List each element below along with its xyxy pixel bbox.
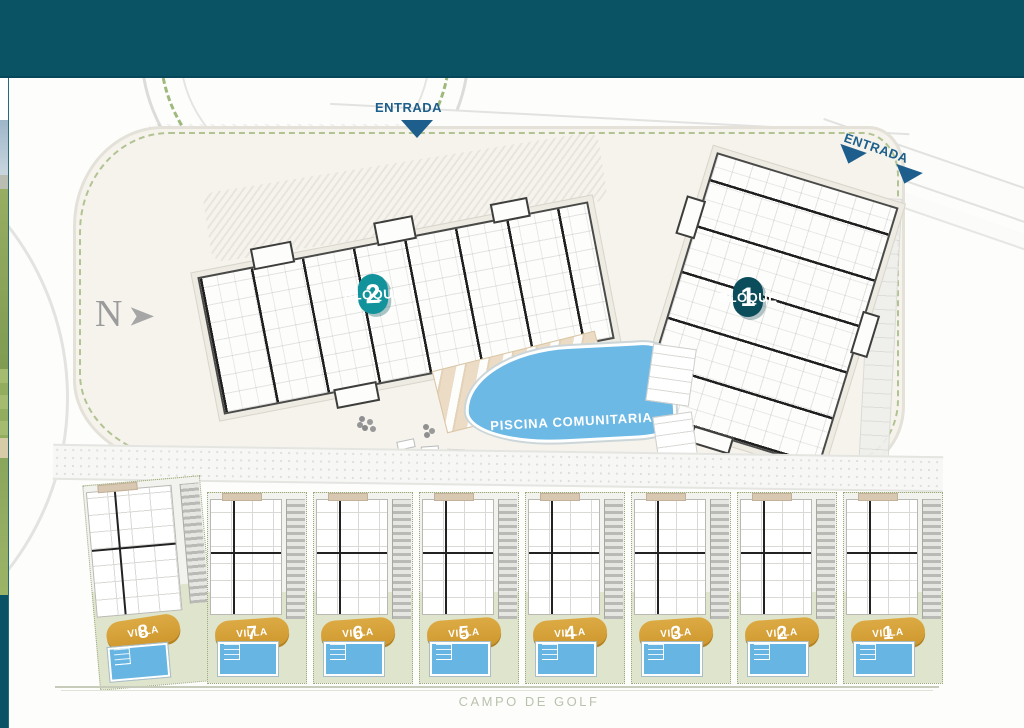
- villa-terrace: [540, 493, 580, 501]
- villa-floorplan: [528, 499, 600, 615]
- bloque-2-number: 2: [365, 280, 381, 308]
- villa-terrace: [328, 493, 368, 501]
- site-boundary-line: [61, 690, 933, 691]
- villa-floorplan: [740, 499, 812, 615]
- villa-floorplan: [634, 499, 706, 615]
- photo-horizon: [0, 175, 8, 189]
- villa-driveway: [604, 499, 623, 619]
- villa-number: 3: [670, 623, 682, 643]
- brochure-page: BLOQUE 2 BLOQUE 1 PISCINA COMUNITARIA EN…: [0, 0, 1024, 728]
- villa-driveway: [816, 499, 835, 619]
- villa-floorplan: [422, 499, 494, 615]
- villa-plot-5: VILLA 5: [419, 492, 519, 684]
- villa-number: 2: [776, 623, 788, 643]
- top-banner: [0, 0, 1024, 78]
- villa-driveway: [179, 482, 208, 603]
- north-arrow-icon: ➤: [127, 299, 156, 333]
- villa-floorplan: [846, 499, 918, 615]
- villa-floorplan: [86, 485, 183, 618]
- left-access-road: [9, 118, 69, 678]
- aerial-photo-strip: [0, 78, 9, 728]
- villa-driveway: [392, 499, 411, 619]
- villa-driveway: [710, 499, 729, 619]
- villa-terrace: [752, 493, 792, 501]
- villa-pool: [536, 642, 596, 676]
- photo-golf-green: [0, 189, 8, 369]
- villa-terrace: [646, 493, 686, 501]
- villa-floorplan: [210, 499, 282, 615]
- photo-sky: [0, 120, 8, 175]
- villa-plot-6: VILLA 6: [313, 492, 413, 684]
- villa-pool: [748, 642, 808, 676]
- bloque-1-badge: BLOQUE 1: [733, 277, 763, 317]
- villa-floorplan: [316, 499, 388, 615]
- photo-golf-green: [0, 458, 8, 595]
- villa-terrace: [858, 493, 898, 501]
- entrance-top-label: ENTRADA: [375, 100, 442, 115]
- villa-pool: [430, 642, 490, 676]
- villa-plot-8: VILLA 8: [82, 475, 218, 691]
- villa-number: 7: [246, 623, 258, 643]
- photo-bunker: [0, 438, 8, 458]
- villa-pool: [642, 642, 702, 676]
- villa-number: 4: [564, 623, 576, 643]
- site-plan: BLOQUE 2 BLOQUE 1 PISCINA COMUNITARIA EN…: [9, 78, 1024, 728]
- villa-driveway: [498, 499, 517, 619]
- villa-plot-7: VILLA 7: [207, 492, 307, 684]
- photo-fairway: [0, 369, 8, 438]
- villa-driveway: [286, 499, 305, 619]
- parking-cluster: [645, 343, 697, 407]
- north-label: N: [95, 292, 122, 336]
- site-boundary-line: [55, 686, 939, 688]
- villa-driveway: [922, 499, 941, 619]
- photo-footer-band: [0, 595, 8, 728]
- bloque-2-badge: BLOQUE 2: [357, 273, 388, 314]
- villa-number: 6: [352, 623, 364, 643]
- villa-terrace: [222, 493, 262, 501]
- villa-pool: [854, 642, 914, 676]
- villa-plot-1: VILLA 1: [843, 492, 943, 684]
- villa-plot-2: VILLA 2: [737, 492, 837, 684]
- villa-pool: [107, 643, 170, 682]
- villa-number: 5: [458, 623, 470, 643]
- tree-cluster: [359, 416, 365, 422]
- pool-label: PISCINA COMUNITARIA: [490, 410, 654, 443]
- villa-plot-4: VILLA 4: [525, 492, 625, 684]
- villa-plot-3: VILLA 3: [631, 492, 731, 684]
- bloque-1-number: 1: [740, 284, 755, 311]
- villa-terrace: [434, 493, 474, 501]
- entrance-arrow-icon: [401, 120, 433, 138]
- tree-cluster: [423, 424, 429, 430]
- golf-course-label: CAMPO DE GOLF: [409, 694, 649, 709]
- villa-pool: [324, 642, 384, 676]
- villa-pool: [218, 642, 278, 676]
- villa-number: 1: [882, 623, 894, 643]
